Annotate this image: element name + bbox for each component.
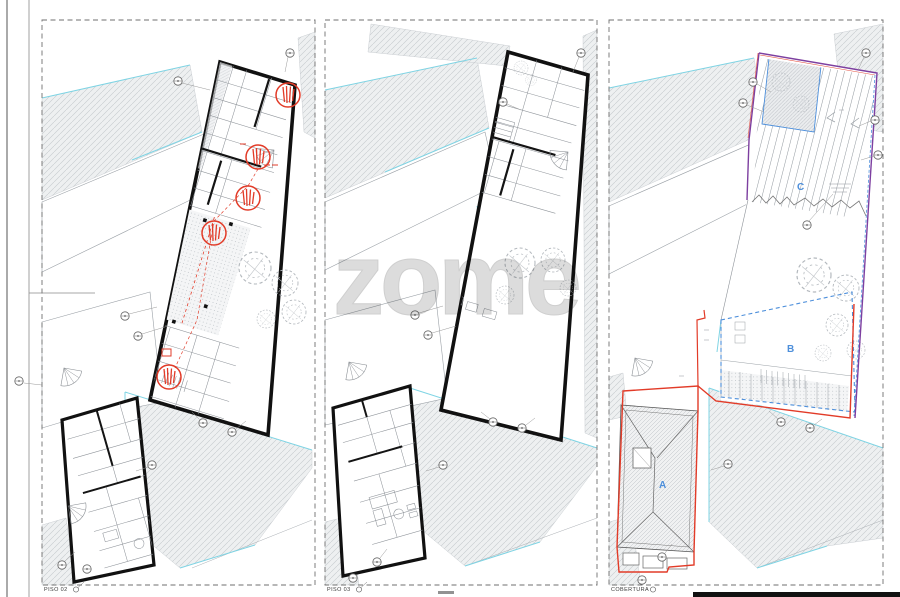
- caption-piso-03: PISO 03: [327, 587, 351, 593]
- micro-caption-mark: [438, 591, 454, 594]
- zone-c-label: C: [797, 182, 804, 193]
- caption-piso-02: PISO 02: [44, 587, 68, 593]
- drawing-sheet: { "sheet": { "watermark": "zome", "panel…: [0, 0, 900, 597]
- caption-marker-icon: [356, 587, 361, 592]
- zone-a-label: A: [659, 480, 666, 491]
- watermark-logo: zome: [333, 228, 578, 330]
- panel-piso-02: [42, 20, 323, 585]
- caption-marker-icon: [650, 587, 655, 592]
- zone-b-label: B: [787, 344, 794, 355]
- caption-cobertura: COBERTURA: [611, 587, 649, 593]
- dwelling-outline: [333, 386, 425, 576]
- context-stair-icon: [632, 358, 653, 379]
- roof-zone-a: [617, 405, 698, 569]
- caption-marker-icon: [73, 587, 78, 592]
- dwelling-outline: [62, 398, 154, 582]
- panel-cobertura: A B C: [609, 20, 883, 585]
- bottom-black-bar: [693, 592, 900, 597]
